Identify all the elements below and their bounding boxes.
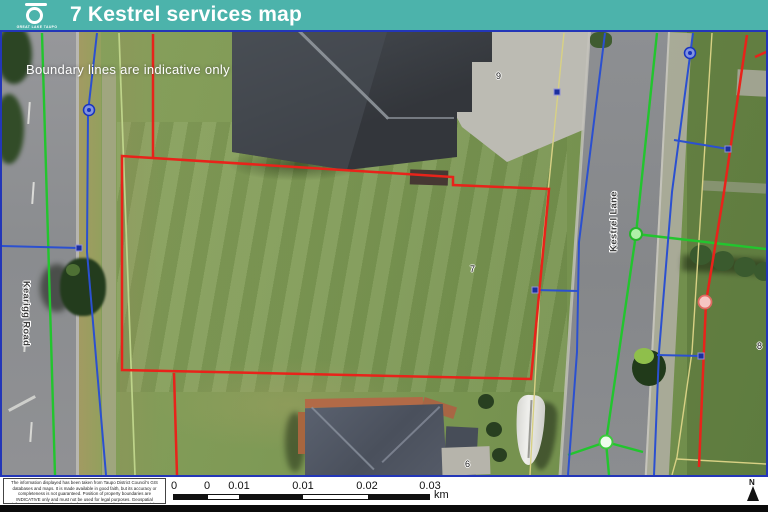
parcel-number-7: 7 [470,264,475,274]
logo-text: GREAT LAKE TAUPO [8,25,66,29]
house-6-roof [305,404,447,475]
bush [486,422,502,437]
map-viewport: Boundary lines are indicative only Keari… [0,30,768,477]
north-arrow-icon [747,486,759,501]
scalebar-label: 0.01 [281,480,325,492]
logo-macron-icon [25,3,47,6]
aerial-imagery [2,32,766,475]
parcel-number-8: 8 [757,341,762,351]
bush [590,32,612,48]
scalebar-bar [173,494,430,500]
bottom-bar [0,505,768,512]
bush [734,257,756,277]
bush [690,245,712,265]
scalebar-unit: km [434,489,449,501]
dark-structure [410,169,449,185]
scalebar-label: 0.01 [217,480,261,492]
parcel-number-6: 6 [465,459,470,469]
parcel-number-9: 9 [496,71,501,81]
bush [712,251,734,271]
road-label-kestrel: Kestrel Lane [609,186,620,258]
page-title: 7 Kestrel services map [70,3,302,27]
bush [478,394,494,409]
footer-panel: The information displayed has been taken… [0,477,768,505]
bush [492,448,507,462]
header-bar: GREAT LAKE TAUPO 7 Kestrel services map [0,0,768,30]
bush [754,262,768,281]
great-lake-taupo-logo: GREAT LAKE TAUPO [8,1,66,29]
logo-ring-icon [26,7,43,24]
services-map-page: GREAT LAKE TAUPO 7 Kestrel services map [0,0,768,512]
scalebar-label: 0.02 [345,480,389,492]
boundary-note: Boundary lines are indicative only [26,62,230,77]
road-label-kearigg: Kearigg Road [21,278,32,350]
disclaimer-box: The information displayed has been taken… [3,478,166,504]
